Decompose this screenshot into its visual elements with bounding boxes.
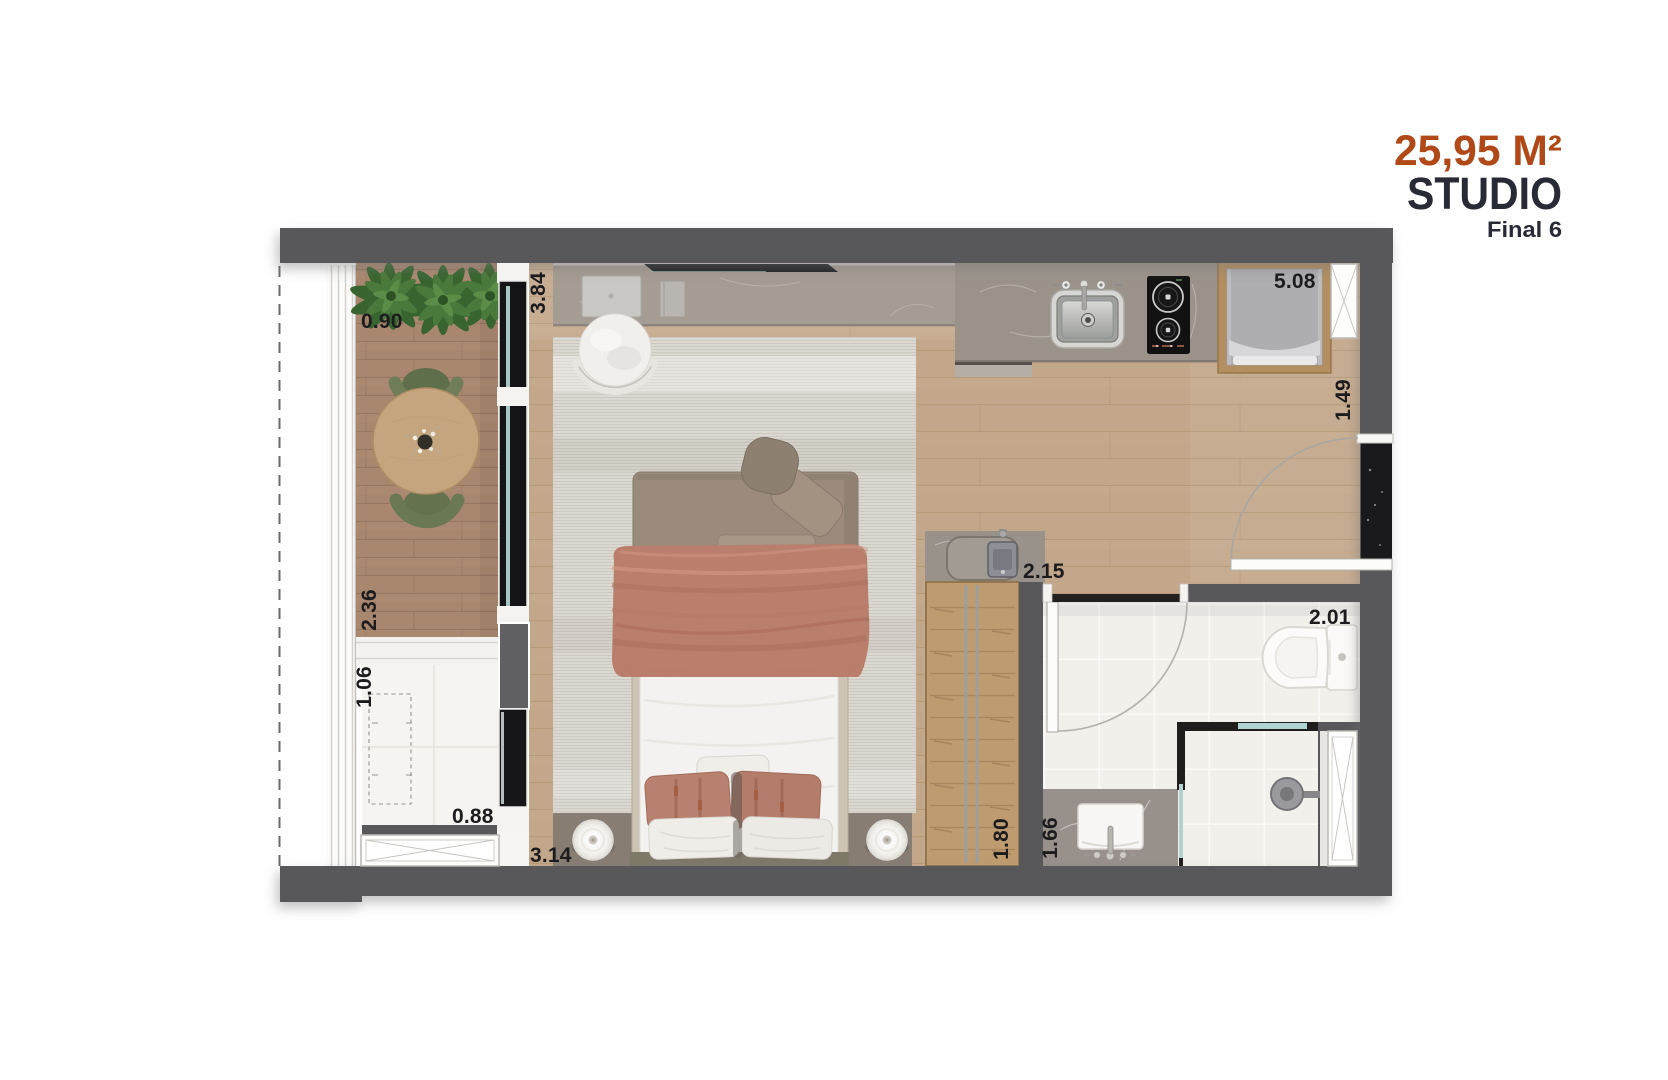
svg-text:Final 6: Final 6 xyxy=(1487,217,1562,242)
svg-text:3.14: 3.14 xyxy=(530,844,572,867)
svg-text:2.15: 2.15 xyxy=(1023,560,1065,583)
svg-text:1.06: 1.06 xyxy=(353,666,376,708)
svg-text:3.84: 3.84 xyxy=(527,272,550,314)
svg-text:2.01: 2.01 xyxy=(1309,606,1351,629)
svg-text:1.66: 1.66 xyxy=(1039,817,1062,859)
svg-text:1.49: 1.49 xyxy=(1332,379,1355,421)
svg-text:0.88: 0.88 xyxy=(452,805,494,828)
svg-text:5.08: 5.08 xyxy=(1274,270,1316,293)
svg-text:2.36: 2.36 xyxy=(358,589,381,631)
svg-text:STUDIO: STUDIO xyxy=(1407,168,1562,219)
svg-text:1.80: 1.80 xyxy=(990,818,1013,860)
svg-text:0.90: 0.90 xyxy=(361,310,403,333)
